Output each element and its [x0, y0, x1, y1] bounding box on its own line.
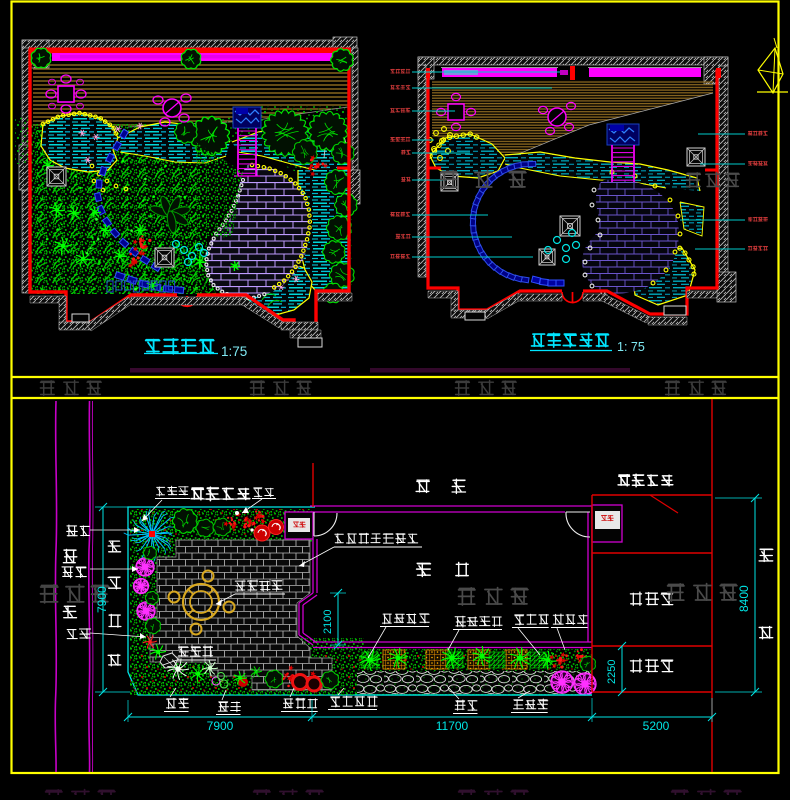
svg-text:5200: 5200: [643, 719, 670, 733]
svg-text:7900: 7900: [95, 586, 109, 613]
svg-text:8400: 8400: [737, 585, 751, 612]
svg-text:2100: 2100: [322, 610, 334, 634]
svg-text:7900: 7900: [207, 719, 234, 733]
svg-text:1:75: 1:75: [221, 344, 247, 359]
svg-text:11700: 11700: [436, 719, 469, 733]
svg-text:1: 75: 1: 75: [617, 340, 645, 354]
svg-text:2250: 2250: [606, 660, 618, 684]
